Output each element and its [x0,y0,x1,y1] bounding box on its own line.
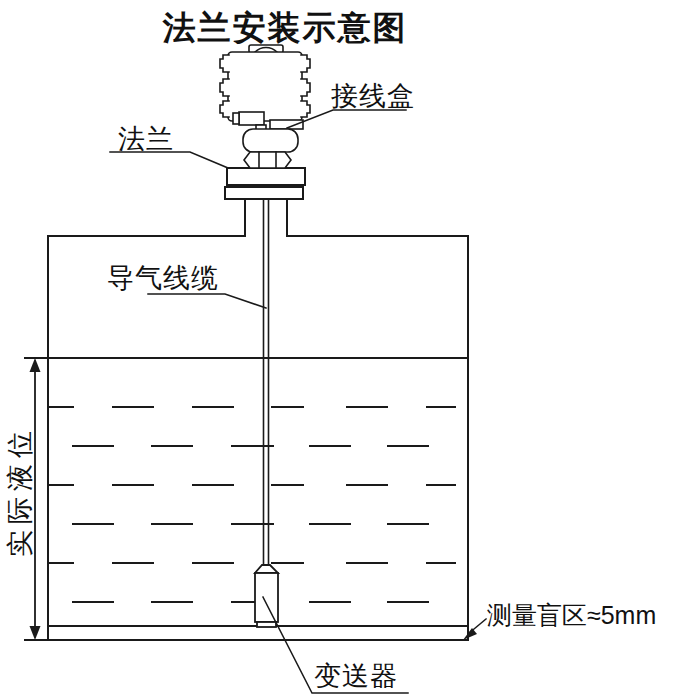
transmitter-head [220,45,310,168]
blind-zone-label: 测量盲区≈5mm [487,599,656,632]
tank-outline [25,236,468,640]
swivel-body [243,129,298,152]
actual-level-label: 实际液位 [2,425,38,557]
liquid-dash-lines [48,407,455,602]
junction-box-label: 接线盒 [331,78,415,114]
hex-nut [244,152,291,168]
cable-line [264,184,269,566]
conduit-entry [239,112,264,125]
head-housing [228,52,302,121]
page-title: 法兰安装示意图 [95,6,475,51]
probe-body [255,565,278,627]
diagram-canvas: 法兰安装示意图 接线盒 法兰 导气线缆 实际液位 变送器 测量盲区≈5mm [0,0,700,700]
nozzle-neck [245,199,287,236]
transmitter-label: 变送器 [314,658,398,694]
blind-zone-arrow [463,619,486,640]
flange-label: 法兰 [118,121,174,157]
air-cable-leader [148,294,266,308]
conduit-end-cap [233,113,239,124]
flange-plates [225,168,305,199]
air-cable-label: 导气线缆 [107,260,219,296]
